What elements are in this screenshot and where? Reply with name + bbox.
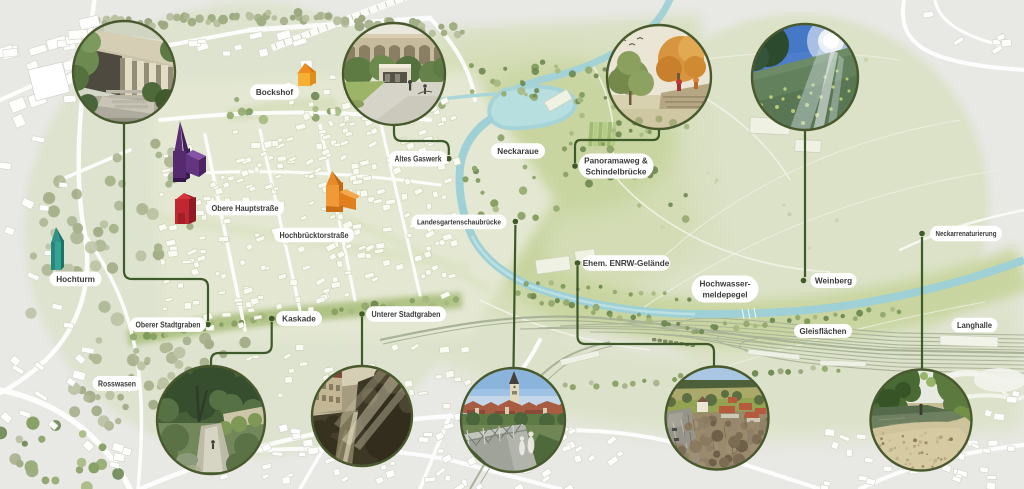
svg-text:Hochturm: Hochturm (56, 275, 95, 284)
svg-text:Neckaraue: Neckaraue (497, 147, 539, 156)
svg-text:Panoramaweg &: Panoramaweg & (584, 157, 648, 166)
svg-text:Weinberg: Weinberg (815, 276, 852, 285)
svg-text:Obere Hauptstraße: Obere Hauptstraße (212, 204, 279, 213)
svg-text:Gleisflächen: Gleisflächen (800, 327, 847, 336)
svg-text:Unterer Stadtgraben: Unterer Stadtgraben (372, 310, 441, 319)
svg-text:Landesgartenschaubrücke: Landesgartenschaubrücke (417, 218, 501, 227)
svg-text:meldepegel: meldepegel (702, 290, 747, 299)
svg-text:Neckarrenaturierung: Neckarrenaturierung (936, 229, 997, 238)
svg-text:Schindelbrücke: Schindelbrücke (586, 167, 647, 176)
svg-text:Ehem. ENRW-Gelände: Ehem. ENRW-Gelände (583, 259, 670, 268)
svg-text:Oberer Stadtgraben: Oberer Stadtgraben (136, 320, 201, 329)
svg-text:Langhalle: Langhalle (957, 321, 992, 330)
svg-text:Rosswasen: Rosswasen (98, 379, 136, 388)
svg-text:Bockshof: Bockshof (256, 88, 294, 97)
svg-text:Hochwasser-: Hochwasser- (700, 280, 751, 289)
svg-text:Kaskade: Kaskade (282, 314, 316, 323)
svg-text:Altes Gaswerk: Altes Gaswerk (395, 155, 442, 164)
svg-text:Hochbrücktorstraße: Hochbrücktorstraße (280, 231, 349, 240)
